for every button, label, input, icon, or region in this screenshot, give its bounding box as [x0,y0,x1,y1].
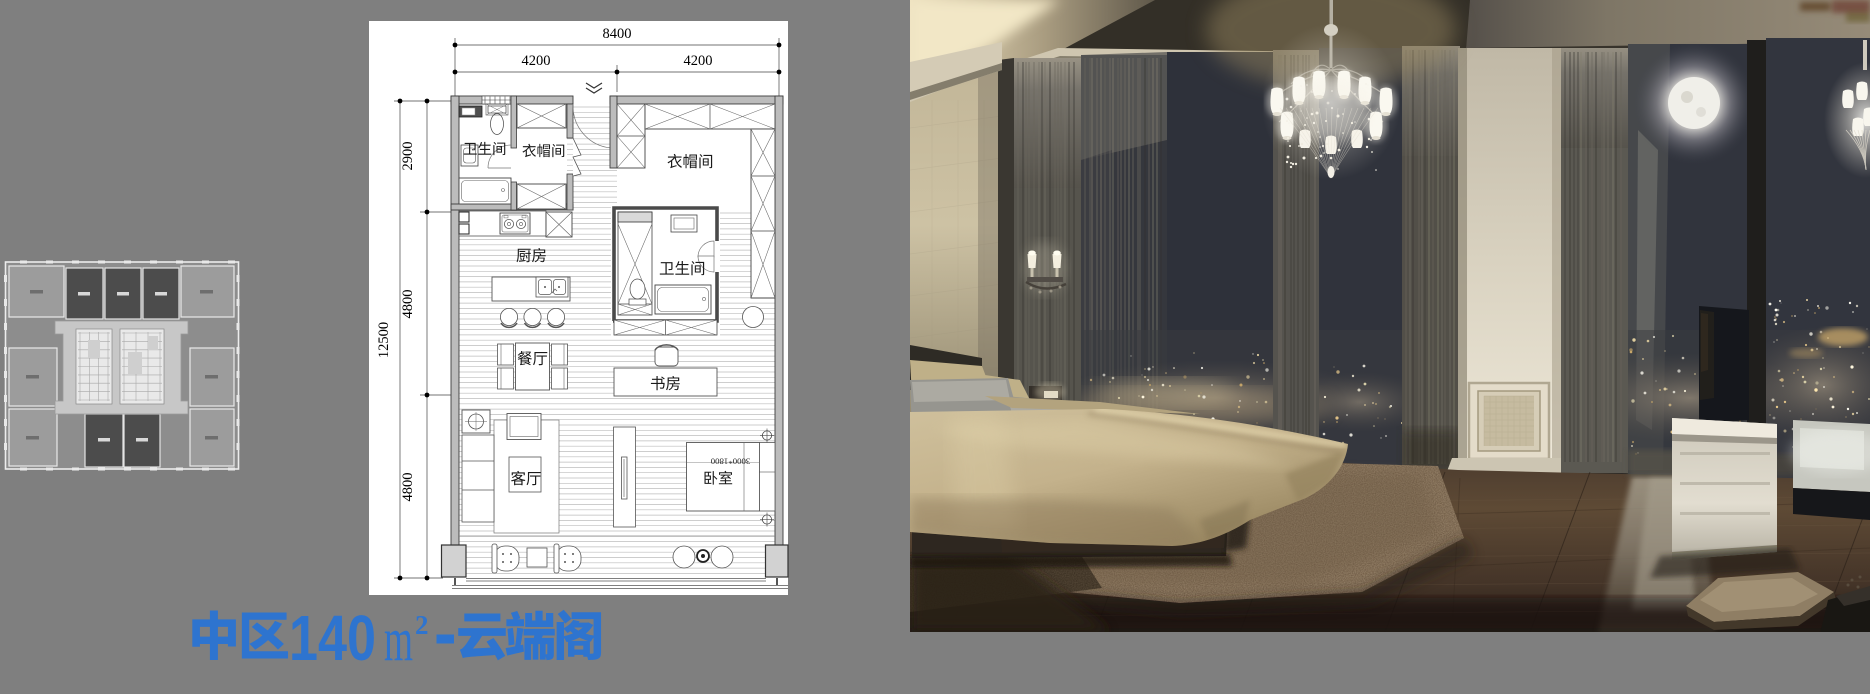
svg-text:3000*1800: 3000*1800 [710,457,750,467]
svg-text:4200: 4200 [522,53,551,69]
svg-text:4800: 4800 [400,290,416,319]
svg-text:m: m [384,606,413,674]
svg-text:4200: 4200 [684,53,713,69]
svg-text:4800: 4800 [400,473,416,502]
svg-text:12500: 12500 [376,322,392,358]
svg-text:140: 140 [289,602,376,674]
svg-text:2: 2 [415,610,429,640]
svg-text:8400: 8400 [603,26,632,42]
svg-text:2900: 2900 [400,142,416,171]
